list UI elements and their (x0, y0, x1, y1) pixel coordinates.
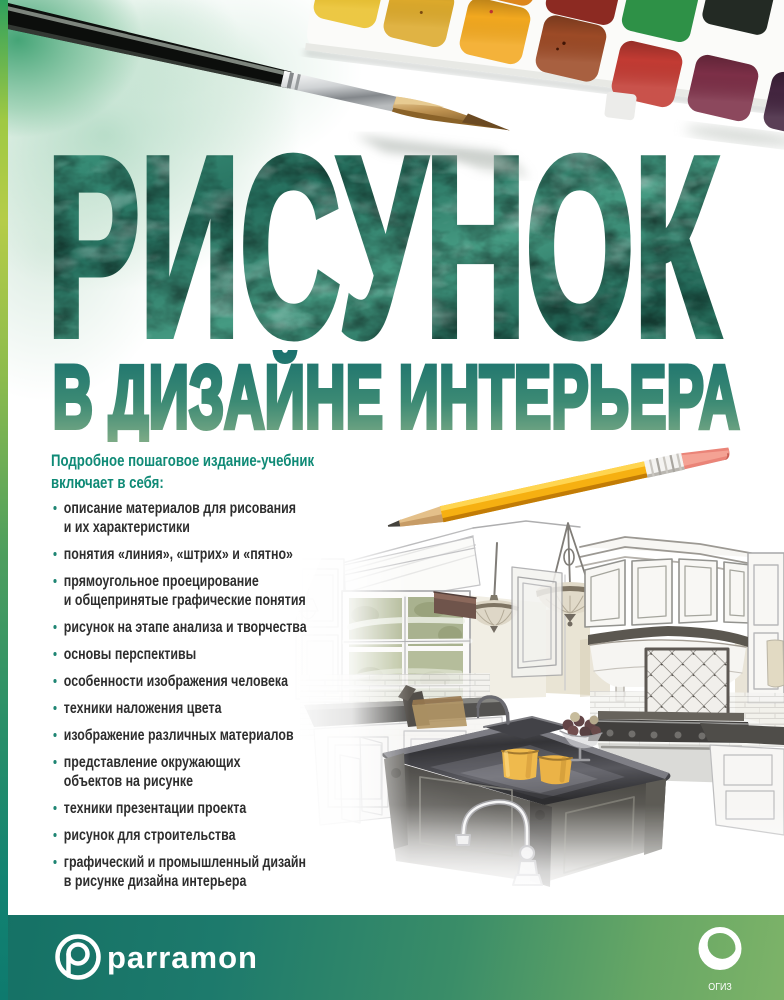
svg-text:ОГИЗ: ОГИЗ (708, 981, 732, 993)
svg-text:parramon: parramon (107, 940, 258, 975)
